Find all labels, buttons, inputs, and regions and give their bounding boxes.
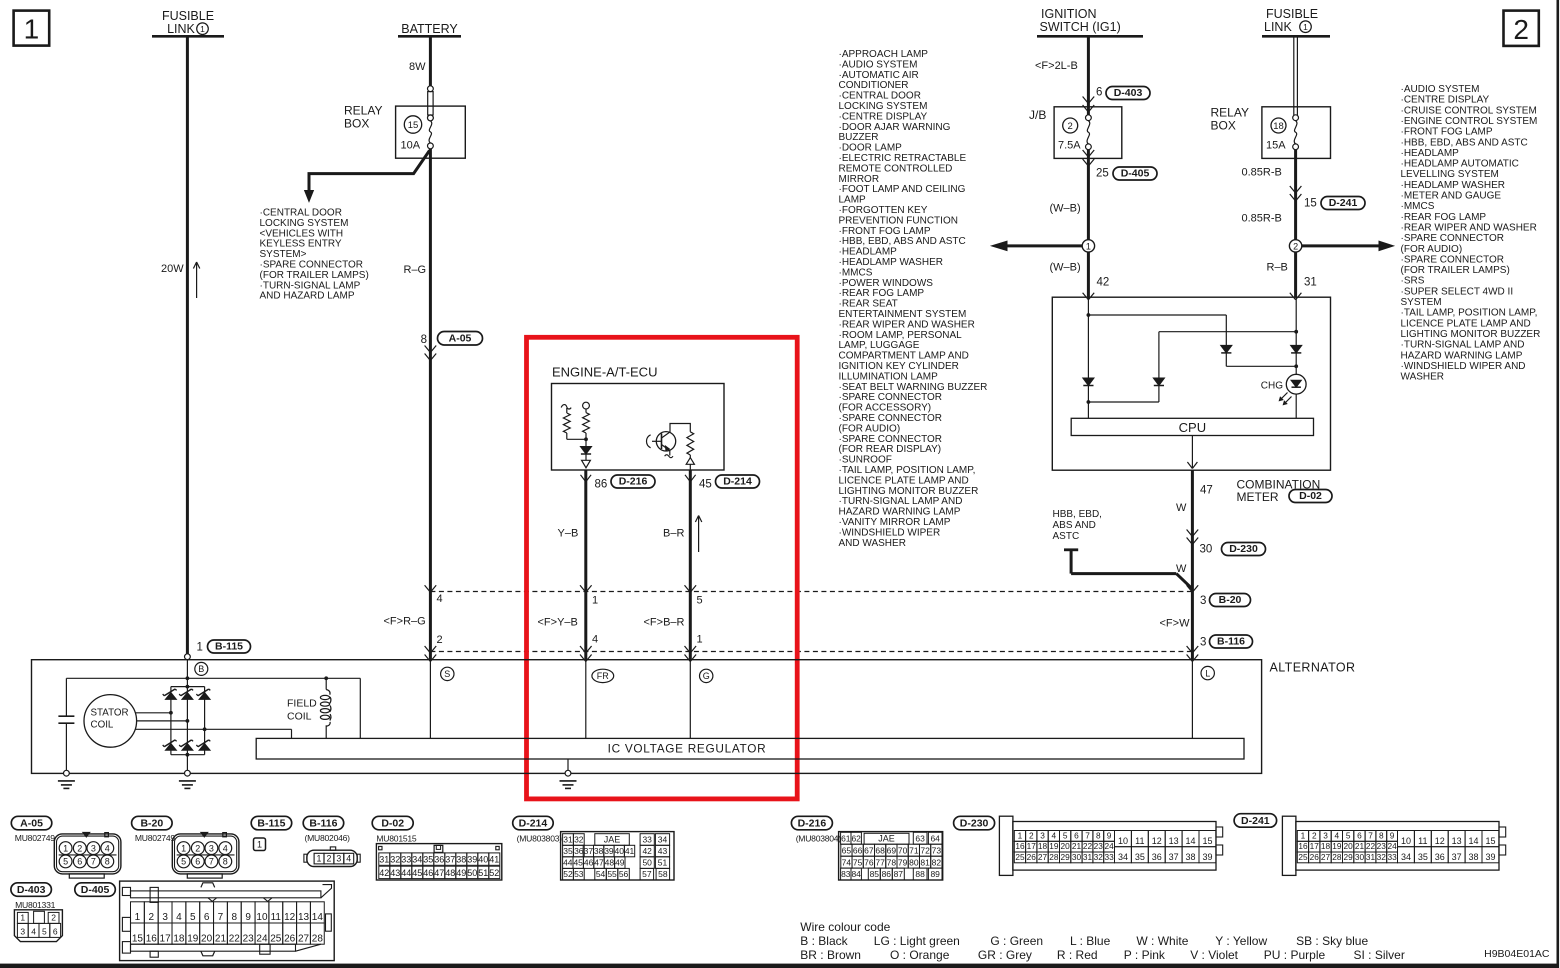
svg-text:2: 2	[1029, 831, 1034, 841]
svg-text:·METER AND GAUGE: ·METER AND GAUGE	[1401, 191, 1502, 202]
svg-text:16: 16	[146, 933, 158, 944]
svg-text:FUSIBLE: FUSIBLE	[1266, 7, 1318, 21]
svg-text:BOX: BOX	[344, 117, 369, 131]
svg-text:6: 6	[195, 857, 200, 867]
svg-text:·WINDSHIELD WIPER: ·WINDSHIELD WIPER	[839, 527, 941, 538]
svg-text:17: 17	[1027, 841, 1037, 851]
svg-text:35: 35	[563, 846, 573, 856]
svg-text:39: 39	[604, 846, 614, 856]
svg-text:·CENTRAL DOOR: ·CENTRAL DOOR	[839, 91, 921, 102]
svg-text:30: 30	[1072, 852, 1082, 862]
svg-text:SI : Silver: SI : Silver	[1354, 948, 1405, 962]
svg-text:B-115: B-115	[215, 641, 243, 653]
svg-text:86: 86	[595, 479, 608, 491]
svg-text:27: 27	[1321, 852, 1331, 862]
svg-text:14: 14	[312, 912, 324, 923]
svg-text:12: 12	[1435, 836, 1445, 846]
svg-text:8W: 8W	[409, 61, 426, 73]
svg-text:37: 37	[1169, 852, 1179, 862]
svg-text:·SPARE CONNECTOR: ·SPARE CONNECTOR	[1401, 233, 1505, 244]
svg-text:W : White: W : White	[1136, 934, 1188, 948]
svg-text:18: 18	[173, 933, 185, 944]
svg-text:HAZARD WARNING LAMP: HAZARD WARNING LAMP	[1401, 350, 1523, 361]
svg-text:B-115: B-115	[257, 817, 285, 829]
svg-text:58: 58	[658, 869, 668, 879]
svg-text:D-241: D-241	[1329, 197, 1358, 209]
svg-text:·HEADLAMP: ·HEADLAMP	[839, 247, 898, 258]
svg-text:·AUDIO SYSTEM: ·AUDIO SYSTEM	[839, 59, 918, 70]
svg-text:49: 49	[615, 858, 625, 868]
svg-text:SYSTEM: SYSTEM	[1401, 297, 1442, 308]
svg-text:34: 34	[1401, 852, 1411, 862]
svg-text:75: 75	[853, 857, 863, 867]
svg-text:·SPARE CONNECTOR: ·SPARE CONNECTOR	[839, 392, 943, 403]
svg-text:D-230: D-230	[960, 817, 989, 829]
svg-text:68: 68	[875, 845, 885, 855]
svg-text:·SPARE CONNECTOR: ·SPARE CONNECTOR	[839, 434, 943, 445]
svg-text:8: 8	[223, 857, 228, 867]
svg-text:·REAR FOG LAMP: ·REAR FOG LAMP	[839, 288, 925, 299]
svg-text:63: 63	[915, 833, 925, 843]
svg-text:ILLUMINATION LAMP: ILLUMINATION LAMP	[839, 371, 939, 382]
svg-text:3: 3	[1040, 831, 1045, 841]
svg-text:D-405: D-405	[1121, 168, 1150, 180]
svg-text:25: 25	[1298, 852, 1308, 862]
svg-text:89: 89	[930, 869, 940, 879]
svg-text:46: 46	[584, 858, 594, 868]
svg-text:·HBB, EBD, ABS AND ASTC: ·HBB, EBD, ABS AND ASTC	[1401, 137, 1528, 148]
svg-text:·ENGINE CONTROL SYSTEM: ·ENGINE CONTROL SYSTEM	[1401, 116, 1538, 127]
svg-text:16: 16	[1298, 841, 1308, 851]
svg-text:1: 1	[20, 913, 25, 923]
svg-text:Wire colour code: Wire colour code	[800, 920, 890, 934]
svg-text:43: 43	[390, 868, 400, 878]
svg-text:79: 79	[898, 857, 908, 867]
svg-text:30: 30	[1200, 544, 1213, 556]
svg-text:5: 5	[1063, 831, 1068, 841]
svg-text:4: 4	[1335, 831, 1340, 841]
svg-text:(FOR AUDIO): (FOR AUDIO)	[839, 423, 901, 434]
svg-text:(W–B): (W–B)	[1050, 203, 1081, 215]
svg-text:32: 32	[390, 855, 400, 865]
svg-text:1: 1	[1301, 831, 1306, 841]
svg-text:LOCKING SYSTEM: LOCKING SYSTEM	[260, 218, 349, 229]
svg-text:D-403: D-403	[17, 884, 46, 896]
svg-text:V : Violet: V : Violet	[1190, 948, 1238, 962]
svg-text:43: 43	[658, 846, 668, 856]
svg-text:47: 47	[594, 858, 604, 868]
svg-text:3: 3	[1323, 831, 1328, 841]
svg-text:·AUDIO SYSTEM: ·AUDIO SYSTEM	[1401, 84, 1480, 95]
svg-text:PU : Purple: PU : Purple	[1264, 948, 1326, 962]
svg-text:45: 45	[412, 868, 422, 878]
svg-text:·AUTOMATIC AIR: ·AUTOMATIC AIR	[839, 70, 919, 81]
svg-text:(FOR ACCESSORY): (FOR ACCESSORY)	[839, 403, 932, 414]
svg-text:5: 5	[190, 912, 196, 923]
svg-text:77: 77	[875, 857, 885, 867]
svg-text:·HEADLAMP AUTOMATIC: ·HEADLAMP AUTOMATIC	[1401, 159, 1519, 170]
svg-text:20: 20	[1061, 841, 1071, 851]
svg-text:O : Orange: O : Orange	[890, 948, 950, 962]
svg-text:LG : Light green: LG : Light green	[874, 934, 960, 948]
svg-text:15: 15	[1304, 198, 1317, 210]
svg-text:44: 44	[401, 868, 411, 878]
svg-text:33: 33	[1387, 852, 1397, 862]
svg-text:34: 34	[412, 855, 422, 865]
svg-text:15: 15	[408, 120, 419, 131]
svg-text:COIL: COIL	[91, 720, 114, 731]
svg-text:RELAY: RELAY	[1211, 106, 1249, 120]
svg-text:9: 9	[1390, 831, 1395, 841]
svg-text:27: 27	[1038, 852, 1048, 862]
svg-text:·APPROACH LAMP: ·APPROACH LAMP	[839, 49, 929, 60]
svg-text:BUZZER: BUZZER	[839, 132, 879, 143]
svg-text:·FRONT FOG LAMP: ·FRONT FOG LAMP	[839, 226, 931, 237]
svg-text:48: 48	[445, 868, 455, 878]
svg-text:71: 71	[909, 845, 919, 855]
svg-text:·ELECTRIC RETRACTABLE: ·ELECTRIC RETRACTABLE	[839, 153, 967, 164]
svg-text:11: 11	[1418, 836, 1427, 846]
svg-text:GR : Grey: GR : Grey	[978, 948, 1032, 962]
svg-text:12: 12	[1152, 836, 1162, 846]
svg-text:4: 4	[105, 843, 110, 853]
svg-text:36: 36	[1435, 852, 1445, 862]
svg-text:3: 3	[1200, 637, 1206, 649]
svg-text:·ROOM LAMP, PERSONAL: ·ROOM LAMP, PERSONAL	[839, 330, 963, 341]
svg-text:·DOOR AJAR WARNING: ·DOOR AJAR WARNING	[839, 122, 951, 133]
svg-text:35: 35	[1418, 852, 1428, 862]
svg-text:7: 7	[209, 857, 214, 867]
svg-text:AND HAZARD LAMP: AND HAZARD LAMP	[260, 291, 355, 302]
svg-text:4: 4	[346, 854, 351, 864]
svg-text:·SUPER SELECT 4WD II: ·SUPER SELECT 4WD II	[1401, 286, 1514, 297]
svg-text:37: 37	[1452, 852, 1462, 862]
svg-text:SWITCH (IG1): SWITCH (IG1)	[1040, 20, 1121, 34]
svg-text:52: 52	[489, 868, 499, 878]
svg-text:LEVELLING SYSTEM: LEVELLING SYSTEM	[1401, 169, 1499, 180]
svg-text:38: 38	[1186, 852, 1196, 862]
svg-text:39: 39	[467, 855, 477, 865]
svg-text:(FOR TRAILER LAMPS): (FOR TRAILER LAMPS)	[260, 270, 369, 281]
svg-text:31: 31	[1304, 277, 1317, 289]
svg-text:88: 88	[915, 869, 925, 879]
svg-text:·VANITY MIRROR LAMP: ·VANITY MIRROR LAMP	[839, 517, 951, 528]
svg-text:(FOR REAR DISPLAY): (FOR REAR DISPLAY)	[839, 444, 942, 455]
svg-text:B-20: B-20	[140, 817, 163, 829]
svg-text:83: 83	[841, 869, 851, 879]
svg-text:COMPARTMENT LAMP AND: COMPARTMENT LAMP AND	[839, 351, 969, 362]
svg-text:RELAY: RELAY	[344, 104, 382, 118]
svg-text:(FOR TRAILER LAMPS): (FOR TRAILER LAMPS)	[1401, 265, 1510, 276]
svg-text:3: 3	[1200, 595, 1206, 607]
svg-text:HAZARD WARNING LAMP: HAZARD WARNING LAMP	[839, 507, 961, 518]
svg-text:<F>R–G: <F>R–G	[384, 616, 426, 628]
svg-text:40: 40	[478, 855, 488, 865]
svg-text:39: 39	[1202, 852, 1212, 862]
svg-text:METER: METER	[1237, 490, 1279, 504]
svg-text:15: 15	[132, 933, 144, 944]
svg-text:36: 36	[574, 846, 584, 856]
svg-text:G : Green: G : Green	[990, 934, 1043, 948]
svg-text:31: 31	[1083, 852, 1093, 862]
svg-text:35: 35	[1135, 852, 1145, 862]
svg-text:12: 12	[284, 912, 296, 923]
svg-text:Y : Yellow: Y : Yellow	[1215, 934, 1267, 948]
svg-text:LICENCE PLATE LAMP AND: LICENCE PLATE LAMP AND	[839, 475, 969, 486]
svg-text:·TAIL LAMP, POSITION LAMP,: ·TAIL LAMP, POSITION LAMP,	[1401, 308, 1538, 319]
svg-text:WASHER: WASHER	[1401, 372, 1445, 383]
svg-text:(MU803804): (MU803804)	[796, 834, 842, 844]
svg-text:69: 69	[887, 845, 897, 855]
svg-text:74: 74	[842, 857, 852, 867]
svg-text:26: 26	[1027, 852, 1037, 862]
svg-text:ASTC: ASTC	[1053, 531, 1080, 542]
svg-text:<F>2L-B: <F>2L-B	[1035, 60, 1078, 72]
svg-text:1: 1	[257, 840, 262, 850]
svg-text:2: 2	[326, 854, 331, 864]
svg-text:5: 5	[1346, 831, 1351, 841]
svg-text:KEYLESS ENTRY: KEYLESS ENTRY	[260, 239, 342, 250]
svg-text:22: 22	[1366, 841, 1376, 851]
svg-text:·CRUISE CONTROL SYSTEM: ·CRUISE CONTROL SYSTEM	[1401, 105, 1537, 116]
svg-text:·FOOT LAMP AND CEILING: ·FOOT LAMP AND CEILING	[839, 184, 966, 195]
svg-text:64: 64	[930, 833, 940, 843]
svg-text:7.5A: 7.5A	[1058, 140, 1081, 152]
svg-text:L: L	[1205, 668, 1210, 678]
svg-text:78: 78	[887, 857, 897, 867]
svg-text:6: 6	[77, 857, 82, 867]
svg-text:18: 18	[1321, 841, 1331, 851]
svg-text:20W: 20W	[161, 263, 184, 275]
svg-text:(FOR AUDIO): (FOR AUDIO)	[1401, 244, 1463, 255]
svg-text:28: 28	[312, 933, 324, 944]
svg-text:13: 13	[1169, 836, 1179, 846]
svg-text:33: 33	[1104, 852, 1114, 862]
svg-text:1: 1	[24, 14, 40, 45]
svg-text:8: 8	[421, 334, 427, 346]
svg-text:1: 1	[1086, 241, 1091, 251]
svg-text:51: 51	[658, 858, 668, 868]
svg-text:32: 32	[574, 835, 584, 845]
svg-text:51: 51	[478, 868, 488, 878]
svg-text:21: 21	[1355, 841, 1365, 851]
svg-text:32: 32	[1377, 852, 1387, 862]
svg-text:54: 54	[596, 869, 606, 879]
svg-text:30: 30	[1355, 852, 1365, 862]
svg-text:72: 72	[920, 845, 930, 855]
svg-text:D-241: D-241	[1241, 815, 1270, 827]
svg-text:A-05: A-05	[449, 333, 472, 345]
svg-text:67: 67	[864, 845, 874, 855]
svg-text:6: 6	[1074, 831, 1079, 841]
svg-text:BATTERY: BATTERY	[401, 22, 458, 36]
svg-text:1: 1	[135, 912, 141, 923]
svg-text:1: 1	[1303, 22, 1308, 32]
svg-text:R–G: R–G	[404, 264, 427, 276]
svg-text:A-05: A-05	[20, 817, 43, 829]
svg-text:24: 24	[256, 933, 268, 944]
svg-text:·DOOR LAMP: ·DOOR LAMP	[839, 143, 903, 154]
svg-text:25: 25	[270, 933, 282, 944]
svg-text:82: 82	[932, 857, 942, 867]
svg-text:BR : Brown: BR : Brown	[800, 948, 861, 962]
svg-text:48: 48	[605, 858, 615, 868]
svg-text:7: 7	[91, 857, 96, 867]
svg-text:5: 5	[63, 857, 68, 867]
svg-text:46: 46	[423, 868, 433, 878]
svg-text:23: 23	[243, 933, 255, 944]
svg-text:5: 5	[42, 927, 47, 937]
svg-text:·SPARE CONNECTOR: ·SPARE CONNECTOR	[839, 413, 943, 424]
svg-text:(MU803803): (MU803803)	[517, 834, 563, 844]
svg-text:PREVENTION FUNCTION: PREVENTION FUNCTION	[839, 215, 958, 226]
svg-text:2: 2	[1293, 241, 1298, 251]
svg-text:4: 4	[223, 843, 228, 853]
svg-text:32: 32	[1094, 852, 1104, 862]
svg-text:85: 85	[870, 869, 880, 879]
svg-text:25: 25	[1096, 168, 1109, 180]
svg-text:·SRS: ·SRS	[1401, 276, 1425, 287]
svg-text:1: 1	[197, 642, 203, 654]
svg-text:11: 11	[271, 912, 282, 923]
svg-text:CPU: CPU	[1179, 420, 1206, 435]
svg-text:33: 33	[401, 855, 411, 865]
svg-text:4: 4	[437, 593, 443, 605]
svg-text:LOCKING SYSTEM: LOCKING SYSTEM	[839, 101, 928, 112]
svg-text:2: 2	[1513, 14, 1529, 45]
svg-text:1: 1	[200, 24, 205, 34]
svg-text:B-116: B-116	[309, 817, 337, 829]
svg-text:7: 7	[1368, 831, 1373, 841]
svg-text:33: 33	[642, 835, 652, 845]
svg-text:LINK: LINK	[167, 22, 195, 36]
svg-text:57: 57	[642, 869, 652, 879]
svg-text:LIGHTING MONITOR BUZZER: LIGHTING MONITOR BUZZER	[1401, 329, 1541, 340]
svg-text:2: 2	[77, 843, 82, 853]
svg-text:80: 80	[909, 857, 919, 867]
svg-text:87: 87	[894, 869, 904, 879]
svg-text:B-116: B-116	[1217, 636, 1245, 648]
svg-text:D-02: D-02	[381, 817, 404, 829]
svg-text:50: 50	[642, 858, 652, 868]
svg-text:·MMCS: ·MMCS	[1401, 201, 1435, 212]
svg-text:<F>W: <F>W	[1160, 618, 1191, 630]
svg-text:<F>Y–B: <F>Y–B	[538, 617, 578, 629]
svg-text:9: 9	[1107, 831, 1112, 841]
svg-text:·FORGOTTEN KEY: ·FORGOTTEN KEY	[839, 205, 928, 216]
svg-text:61: 61	[841, 833, 851, 843]
svg-text:10A: 10A	[401, 140, 421, 152]
svg-text:IGNITION: IGNITION	[1041, 7, 1097, 21]
svg-text:35: 35	[423, 855, 433, 865]
svg-text:1: 1	[592, 595, 598, 607]
svg-text:10: 10	[1401, 836, 1411, 846]
svg-text:4: 4	[176, 912, 182, 923]
svg-text:ENGINE-A/T-ECU: ENGINE-A/T-ECU	[552, 365, 657, 380]
svg-text:·TURN-SIGNAL LAMP AND: ·TURN-SIGNAL LAMP AND	[1401, 340, 1525, 351]
svg-text:·MMCS: ·MMCS	[839, 267, 873, 278]
svg-text:R–B: R–B	[1267, 262, 1288, 274]
svg-text:13: 13	[298, 912, 310, 923]
svg-text:LAMP, LUGGAGE: LAMP, LUGGAGE	[839, 340, 920, 351]
svg-text:REMOTE CONTROLLED: REMOTE CONTROLLED	[839, 163, 953, 174]
svg-text:9: 9	[245, 912, 251, 923]
svg-text:STATOR: STATOR	[91, 708, 129, 719]
svg-text:MIRROR: MIRROR	[839, 174, 880, 185]
svg-text:17: 17	[1310, 841, 1320, 851]
svg-text:24: 24	[1387, 841, 1397, 851]
svg-text:6: 6	[1357, 831, 1362, 841]
svg-text:19: 19	[1332, 841, 1342, 851]
svg-text:2: 2	[437, 634, 443, 646]
svg-text:·REAR FOG LAMP: ·REAR FOG LAMP	[1401, 212, 1487, 223]
svg-text:0.85R-B: 0.85R-B	[1242, 167, 1282, 179]
svg-text:(MU802046): (MU802046)	[305, 833, 351, 843]
svg-text:MU801331: MU801331	[15, 900, 56, 910]
svg-text:P : Pink: P : Pink	[1124, 948, 1166, 962]
svg-text:·CENTRAL DOOR: ·CENTRAL DOOR	[260, 208, 342, 219]
svg-text:(W–B): (W–B)	[1050, 262, 1081, 274]
svg-text:·TURN-SIGNAL LAMP AND: ·TURN-SIGNAL LAMP AND	[839, 496, 963, 507]
svg-text:11: 11	[1135, 836, 1144, 846]
svg-text:10: 10	[256, 912, 268, 923]
svg-text:38: 38	[1469, 852, 1479, 862]
svg-text:45: 45	[699, 479, 712, 491]
svg-text:36: 36	[1152, 852, 1162, 862]
svg-text:ENTERTAINMENT SYSTEM: ENTERTAINMENT SYSTEM	[839, 309, 967, 320]
svg-text:42: 42	[379, 868, 389, 878]
svg-text:CHG: CHG	[1261, 381, 1283, 392]
svg-text:D-214: D-214	[519, 817, 548, 829]
svg-text:6: 6	[204, 912, 210, 923]
svg-text:39: 39	[1485, 852, 1495, 862]
svg-text:·HEADLAMP WASHER: ·HEADLAMP WASHER	[1401, 180, 1505, 191]
svg-text:20: 20	[1344, 841, 1354, 851]
svg-text:1: 1	[63, 843, 68, 853]
svg-text:1: 1	[181, 843, 186, 853]
svg-text:B-20: B-20	[1219, 594, 1242, 606]
svg-text:·SPARE CONNECTOR: ·SPARE CONNECTOR	[260, 260, 364, 271]
svg-text:3: 3	[162, 912, 168, 923]
svg-text:17: 17	[160, 933, 172, 944]
svg-text:53: 53	[574, 869, 584, 879]
svg-text:42: 42	[642, 846, 652, 856]
svg-text:4: 4	[1052, 831, 1057, 841]
svg-text:0.85R-B: 0.85R-B	[1242, 213, 1282, 225]
svg-text:·FRONT FOG LAMP: ·FRONT FOG LAMP	[1401, 127, 1493, 138]
svg-text:BOX: BOX	[1211, 119, 1236, 133]
svg-text:16: 16	[1015, 841, 1025, 851]
svg-text:IC VOLTAGE REGULATOR: IC VOLTAGE REGULATOR	[608, 742, 767, 756]
svg-text:SB : Sky blue: SB : Sky blue	[1296, 934, 1368, 948]
svg-text:·SEAT BELT WARNING BUZZER: ·SEAT BELT WARNING BUZZER	[839, 382, 988, 393]
svg-text:·TURN-SIGNAL LAMP: ·TURN-SIGNAL LAMP	[260, 280, 361, 291]
svg-text:26: 26	[284, 933, 296, 944]
svg-text:8: 8	[1096, 831, 1101, 841]
svg-text:50: 50	[467, 868, 477, 878]
svg-text:27: 27	[298, 933, 310, 944]
svg-text:31: 31	[379, 855, 389, 865]
svg-text:2: 2	[1068, 121, 1073, 132]
svg-text:6: 6	[1096, 87, 1102, 99]
svg-text:B : Black: B : Black	[800, 934, 848, 948]
svg-text:R : Red: R : Red	[1057, 948, 1098, 962]
svg-text:22: 22	[229, 933, 241, 944]
svg-text:62: 62	[851, 833, 861, 843]
svg-text:22: 22	[1083, 841, 1093, 851]
svg-text:8: 8	[1379, 831, 1384, 841]
svg-text:1: 1	[317, 854, 322, 864]
